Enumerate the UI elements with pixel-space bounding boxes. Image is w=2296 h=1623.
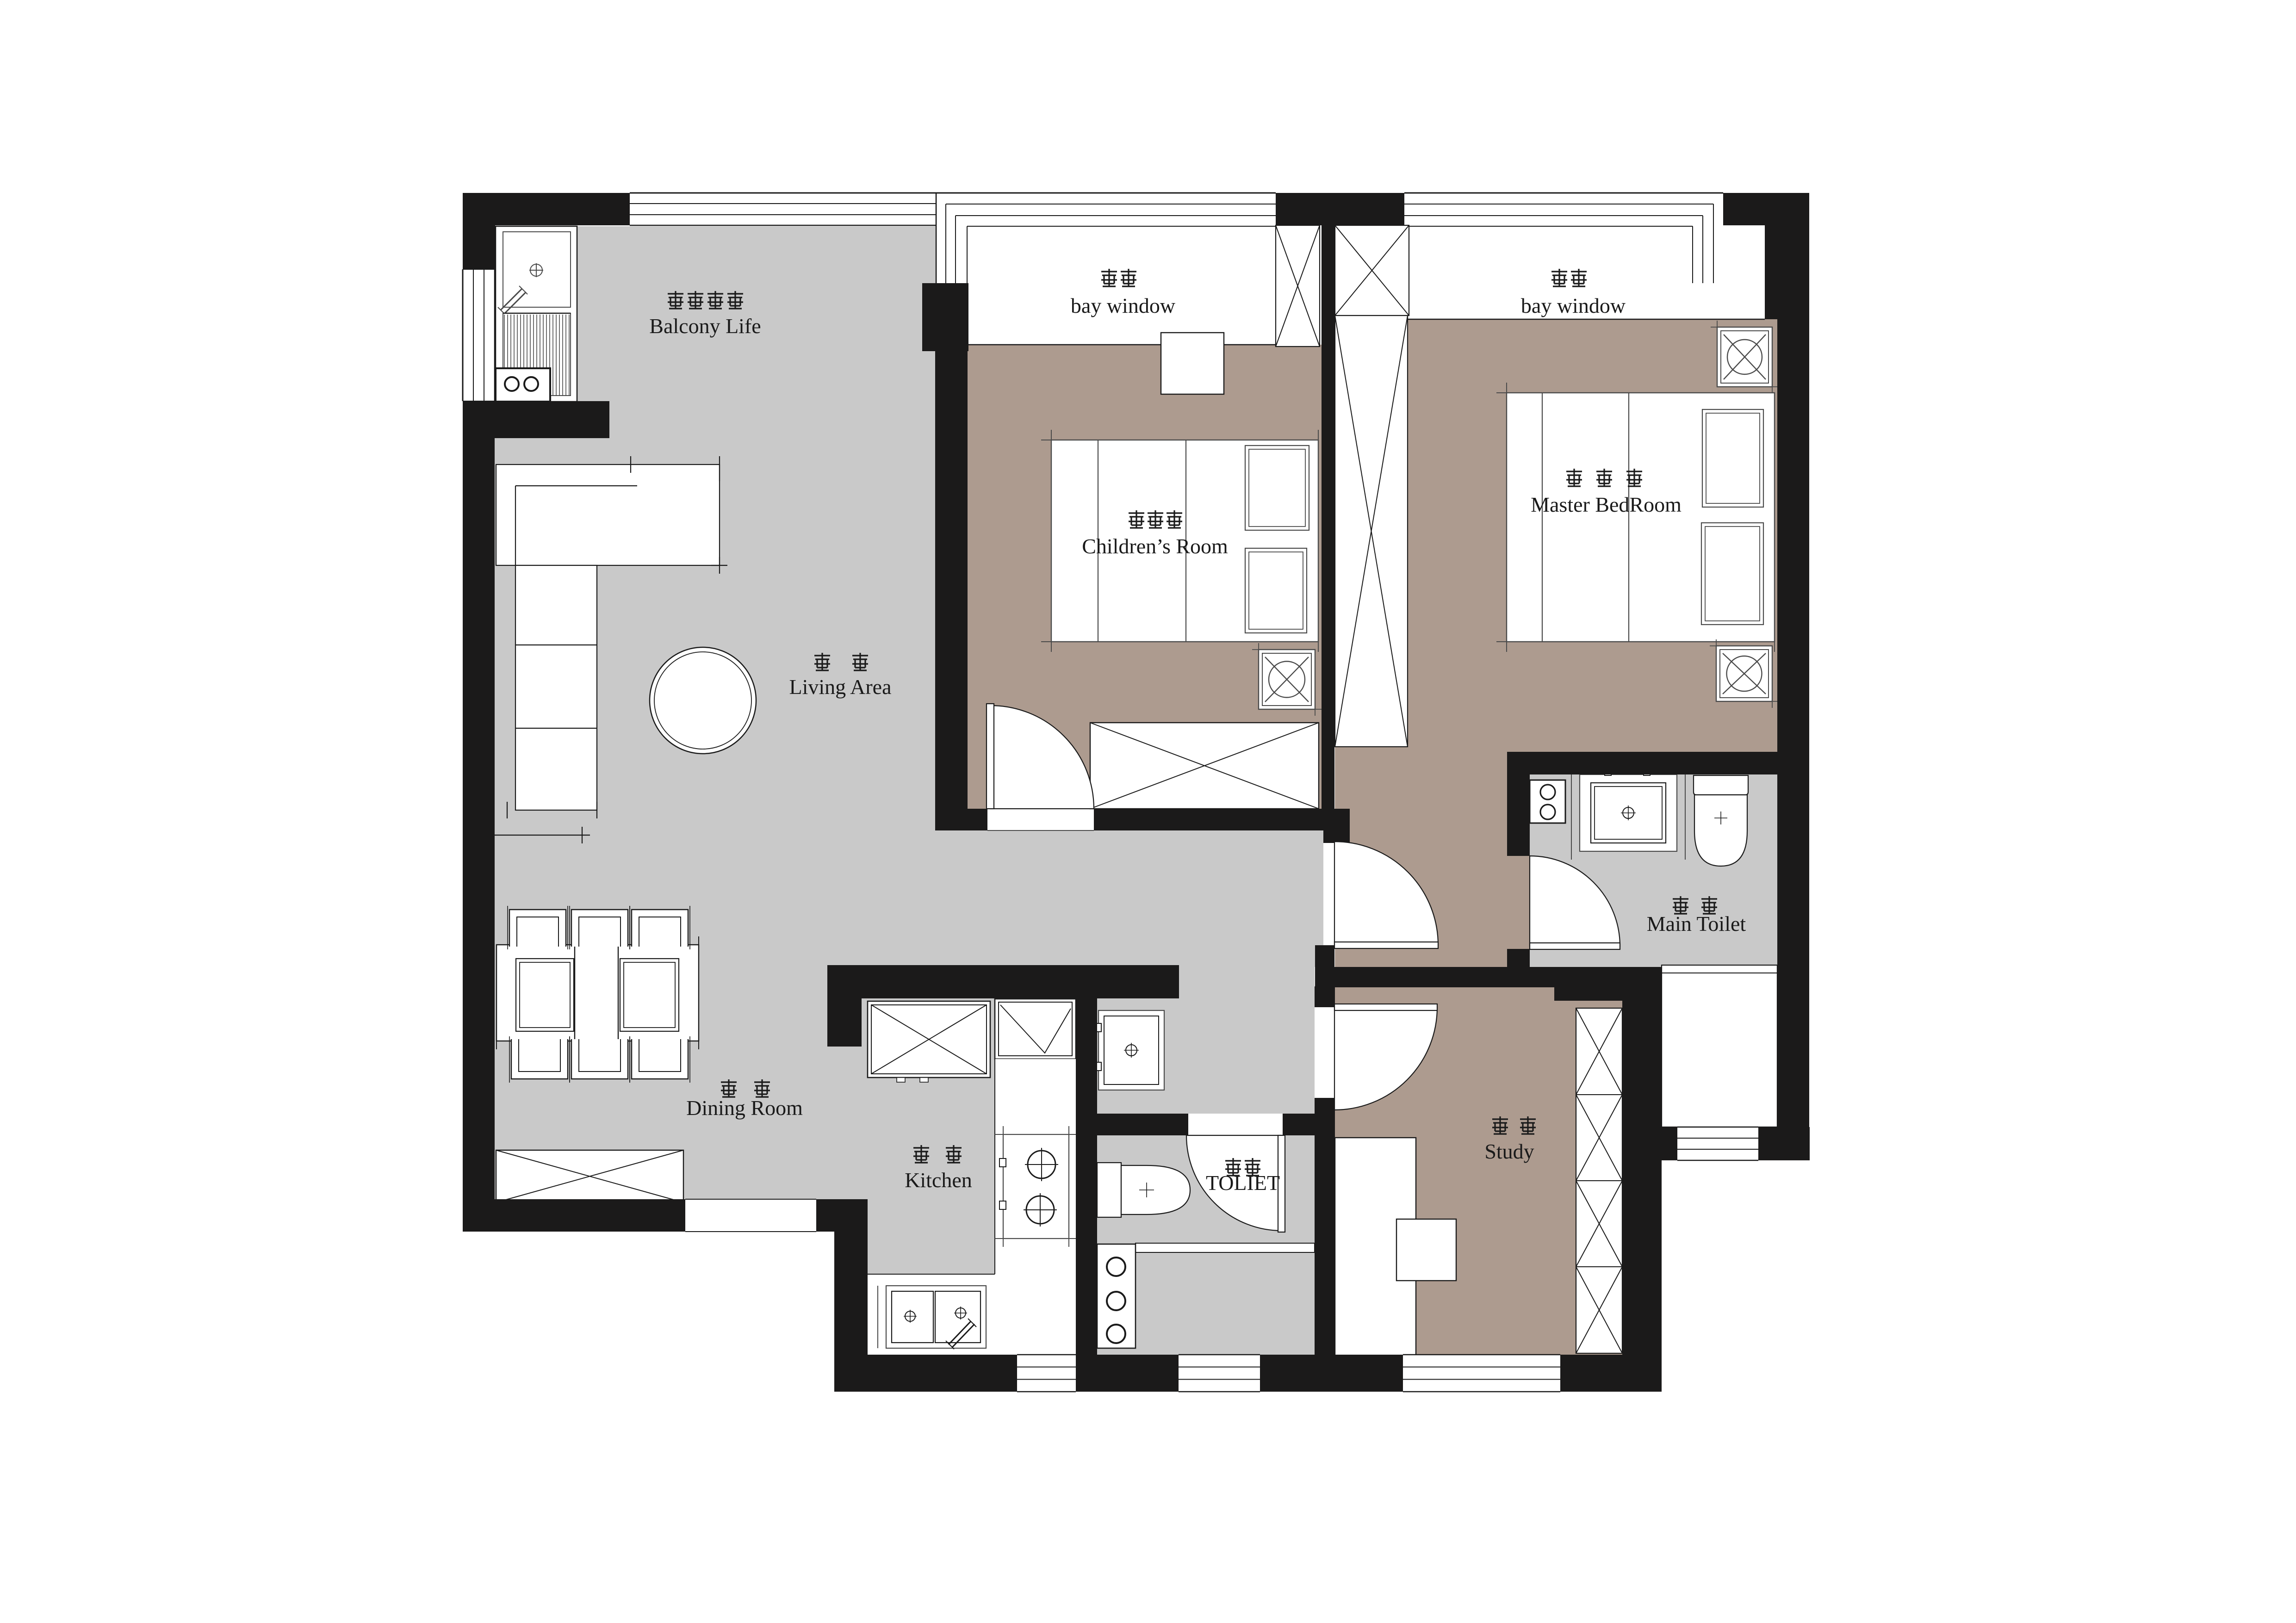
svg-text:Children’s Room: Children’s Room [1082,534,1228,558]
svg-text:Kitchen: Kitchen [905,1168,972,1192]
svg-text:TOLIET: TOLIET [1206,1171,1280,1195]
svg-text:Living Area: Living Area [789,675,892,699]
svg-text:Master BedRoom: Master BedRoom [1531,493,1682,516]
svg-text:Balcony Life: Balcony Life [649,314,761,338]
svg-text:Study: Study [1484,1140,1534,1163]
svg-text:Main Toilet: Main Toilet [1647,912,1746,935]
svg-text:bay window: bay window [1521,294,1626,317]
svg-text:Dining Room: Dining Room [686,1096,803,1120]
svg-text:bay window: bay window [1071,294,1176,317]
